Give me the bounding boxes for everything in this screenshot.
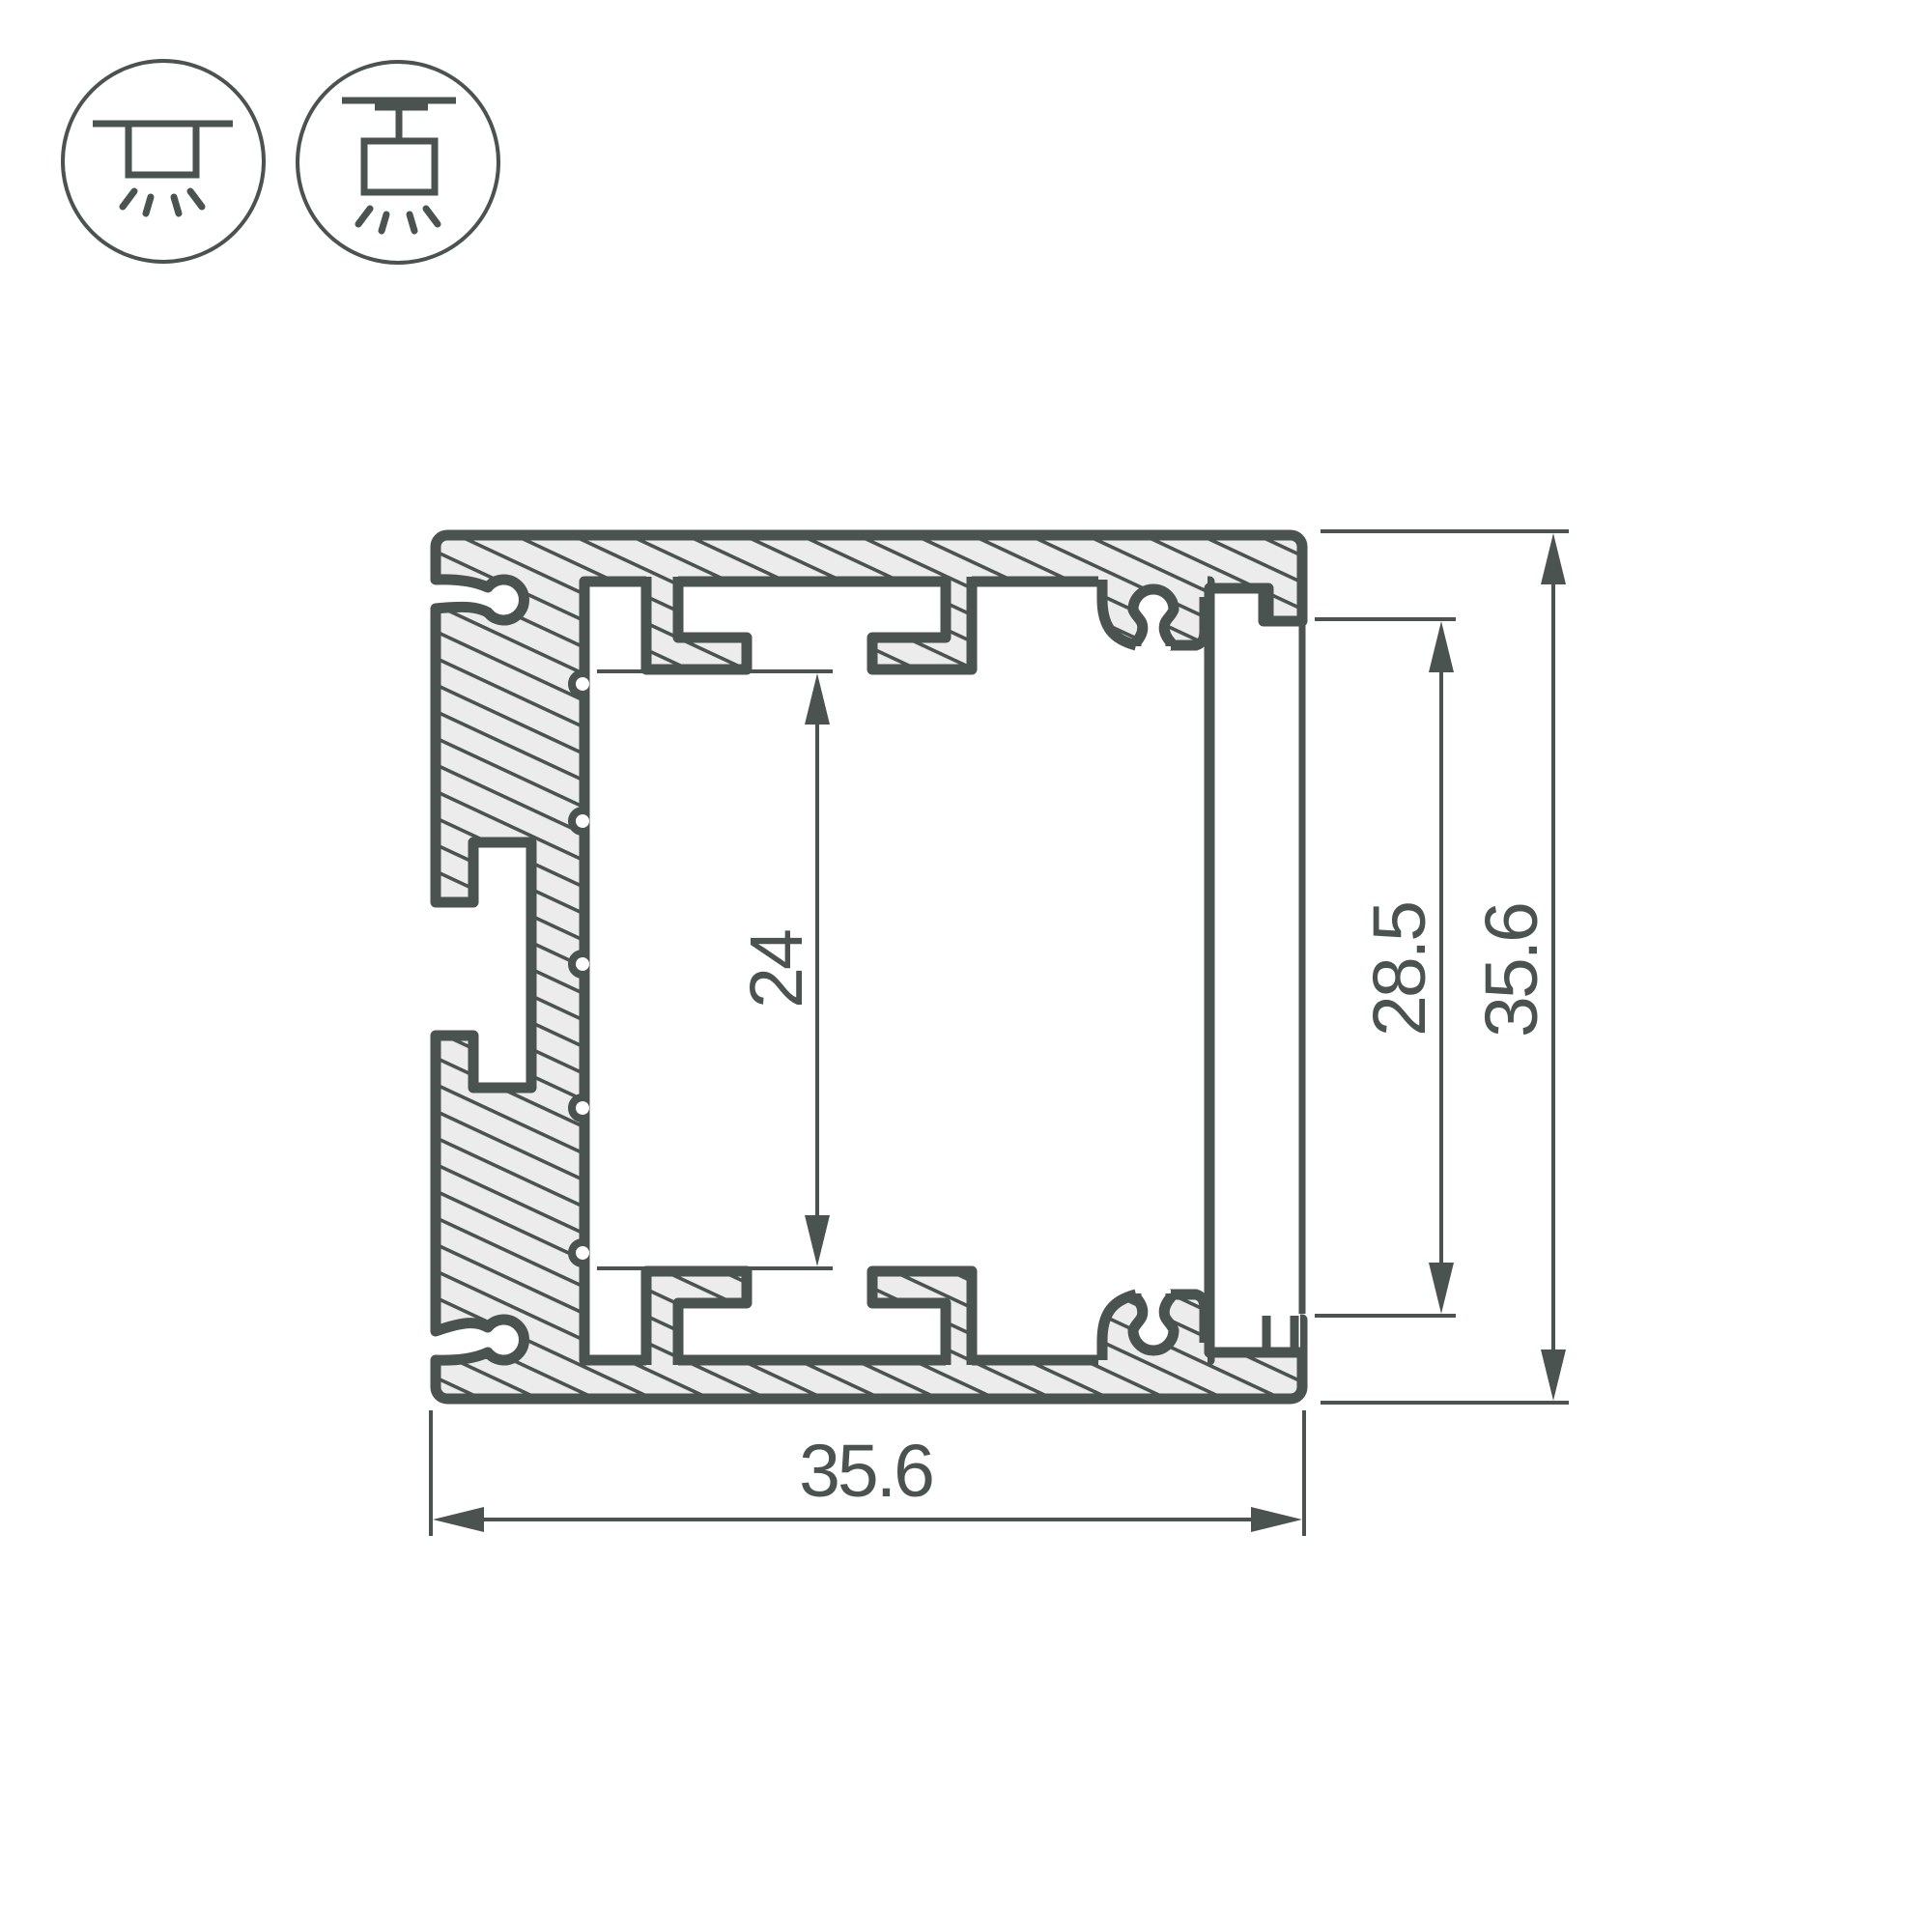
svg-text:24: 24	[735, 930, 818, 1009]
svg-text:35.6: 35.6	[1470, 904, 1553, 1037]
svg-text:35.6: 35.6	[799, 1430, 932, 1513]
svg-text:28.5: 28.5	[1358, 903, 1441, 1037]
